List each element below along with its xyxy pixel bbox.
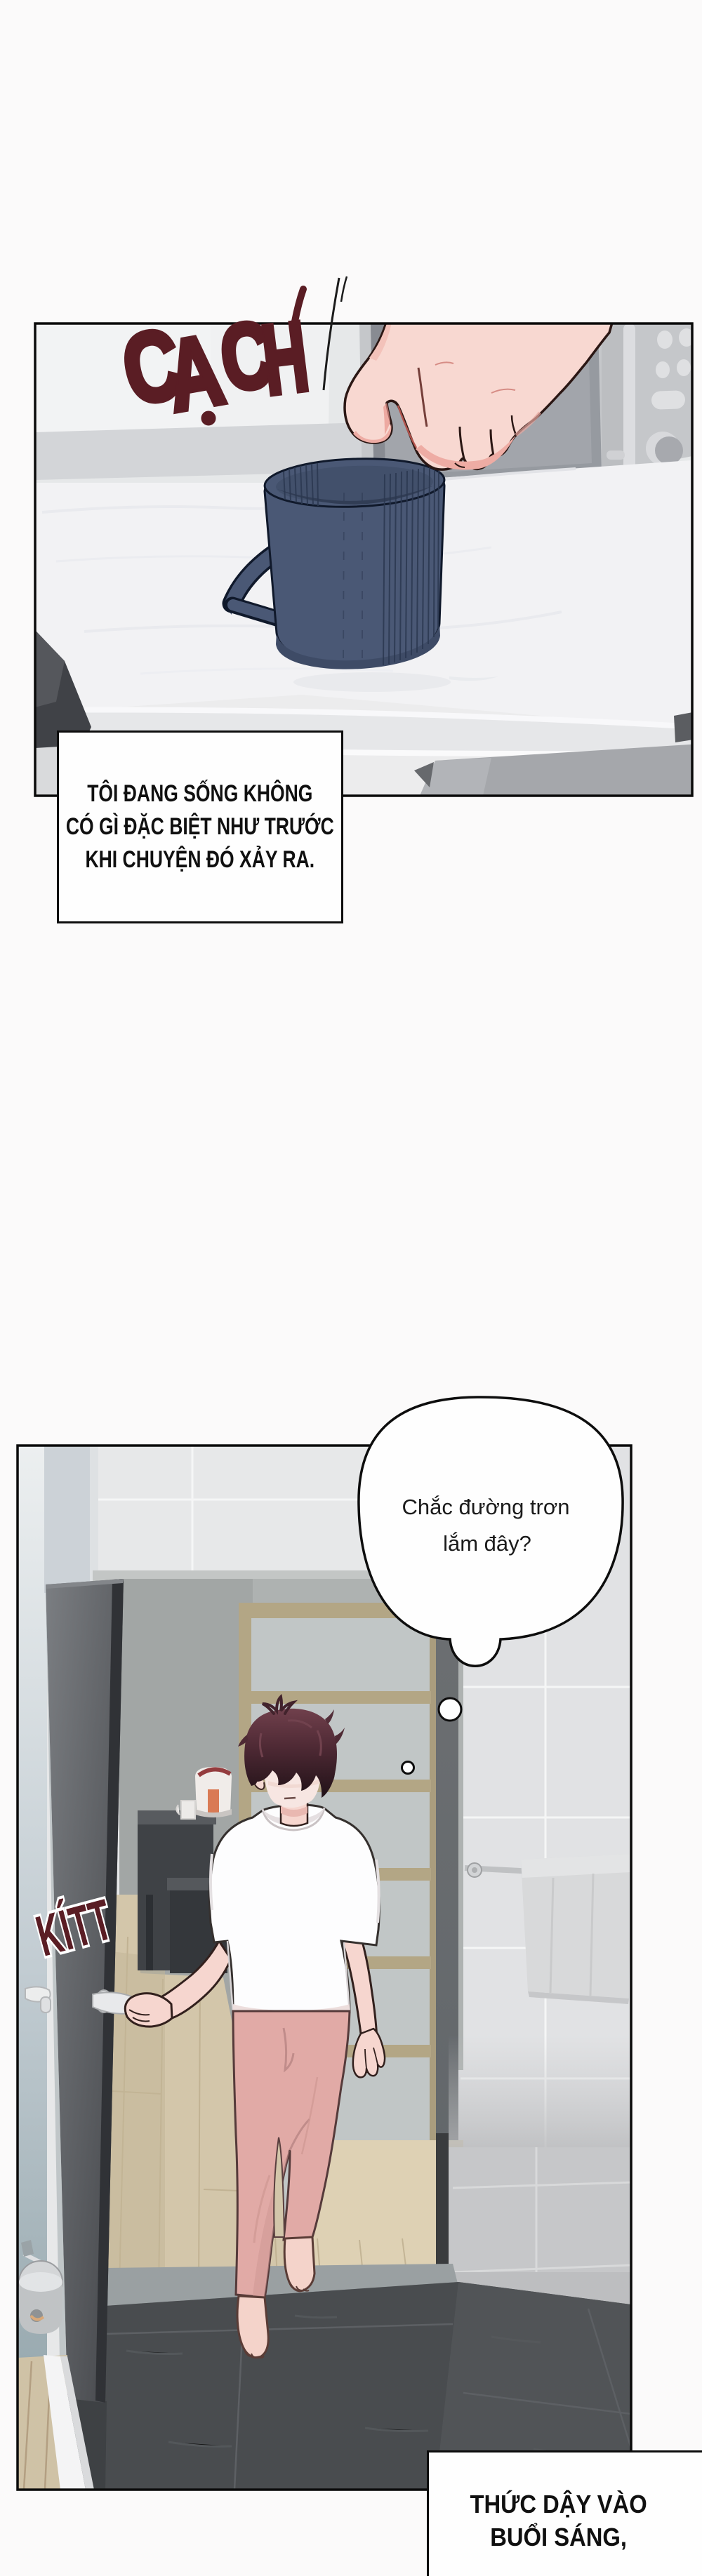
svg-text:lắm đây?: lắm đây?: [443, 1531, 531, 1556]
svg-text:Chắc đường trơn: Chắc đường trơn: [402, 1495, 570, 1519]
